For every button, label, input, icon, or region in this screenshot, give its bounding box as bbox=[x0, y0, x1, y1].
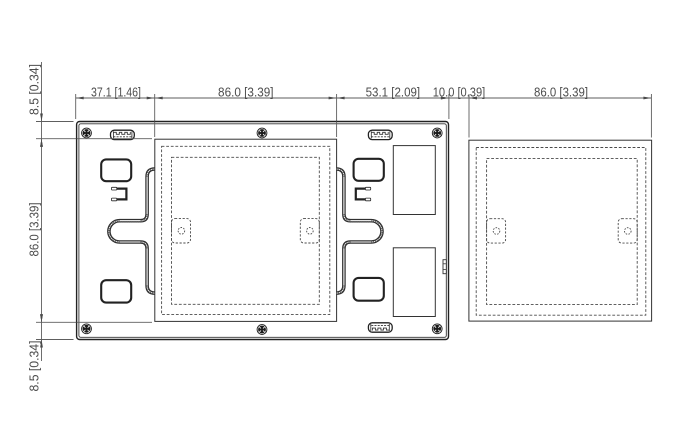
svg-text:86.0 [3.39]: 86.0 [3.39] bbox=[27, 203, 42, 257]
svg-text:8.5 [0.34]: 8.5 [0.34] bbox=[27, 341, 42, 392]
svg-text:53.1 [2.09]: 53.1 [2.09] bbox=[366, 85, 421, 100]
svg-text:86.0 [3.39]: 86.0 [3.39] bbox=[534, 85, 588, 100]
svg-text:10.0 [0.39]: 10.0 [0.39] bbox=[433, 85, 486, 100]
svg-text:86.0 [3.39]: 86.0 [3.39] bbox=[218, 85, 274, 100]
svg-text:37.1 [1.46]: 37.1 [1.46] bbox=[91, 85, 141, 100]
svg-text:8.5 [0.34]: 8.5 [0.34] bbox=[27, 64, 42, 115]
